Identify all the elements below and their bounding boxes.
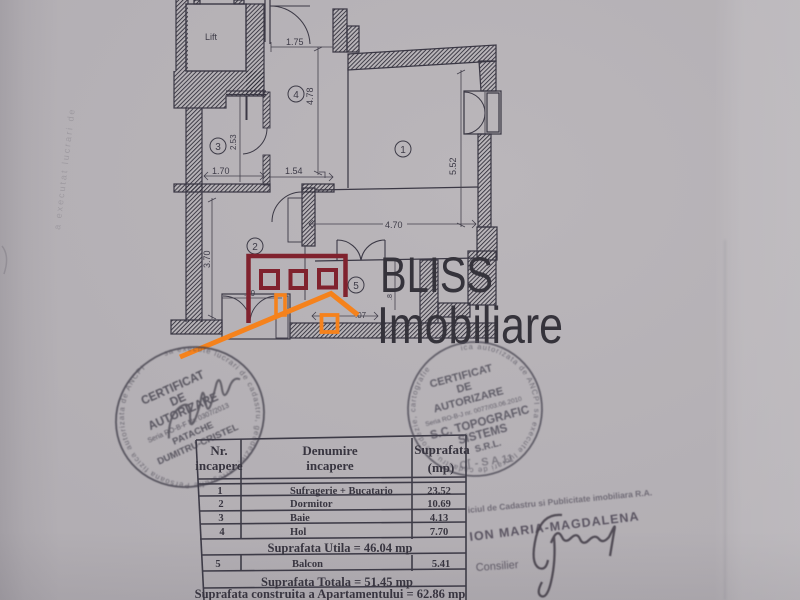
svg-text:1: 1 <box>400 145 406 156</box>
svg-text:1.75: 1.75 <box>286 37 304 47</box>
svg-text:4.13: 4.13 <box>430 513 448 524</box>
svg-text:Suprafata Utila = 46.04 mp: Suprafata Utila = 46.04 mp <box>268 541 413 555</box>
svg-text:5: 5 <box>215 559 220 570</box>
svg-text:(mp): (mp) <box>428 460 455 475</box>
svg-text:incapere: incapere <box>195 458 243 473</box>
svg-text:4: 4 <box>219 527 225 538</box>
svg-text:incapere: incapere <box>306 458 354 473</box>
svg-text:Nr.: Nr. <box>210 443 227 458</box>
svg-text:3.70: 3.70 <box>202 250 212 268</box>
svg-text:Lift: Lift <box>205 32 218 42</box>
svg-text:Baie: Baie <box>290 513 310 524</box>
svg-text:Sufragerie + Bucatario: Sufragerie + Bucatario <box>290 486 393 497</box>
svg-text:1.70: 1.70 <box>212 166 230 176</box>
svg-text:2.53: 2.53 <box>229 134 238 150</box>
svg-text:a executat lucrari de: a executat lucrari de <box>52 107 77 230</box>
svg-text:1.54: 1.54 <box>285 166 303 176</box>
svg-text:3: 3 <box>215 142 221 153</box>
svg-text:2: 2 <box>218 499 223 510</box>
svg-text:Consilier: Consilier <box>475 559 519 574</box>
svg-text:23.52: 23.52 <box>427 486 451 497</box>
svg-text:5: 5 <box>353 281 359 292</box>
svg-text:Hol: Hol <box>290 527 306 538</box>
svg-text:4: 4 <box>293 90 299 101</box>
svg-text:Suprafata: Suprafata <box>414 442 470 457</box>
svg-text:7.70: 7.70 <box>430 527 448 538</box>
svg-text:Dormitor: Dormitor <box>290 499 333 510</box>
svg-text:2: 2 <box>252 242 258 253</box>
svg-text:10.69: 10.69 <box>427 499 451 510</box>
svg-text:4.70: 4.70 <box>385 220 403 230</box>
svg-text:Balcon: Balcon <box>292 559 323 570</box>
svg-text:1: 1 <box>217 486 222 497</box>
svg-text:BLISS: BLISS <box>380 247 493 303</box>
svg-text:5.52: 5.52 <box>448 157 458 175</box>
svg-text:4.78: 4.78 <box>305 87 315 105</box>
svg-text:5.41: 5.41 <box>432 559 450 570</box>
svg-text:3: 3 <box>218 513 223 524</box>
svg-text:Suprafata construita a Aparta: Suprafata construita a Apartamentului = … <box>195 587 466 600</box>
svg-text:Denumire: Denumire <box>302 443 358 458</box>
